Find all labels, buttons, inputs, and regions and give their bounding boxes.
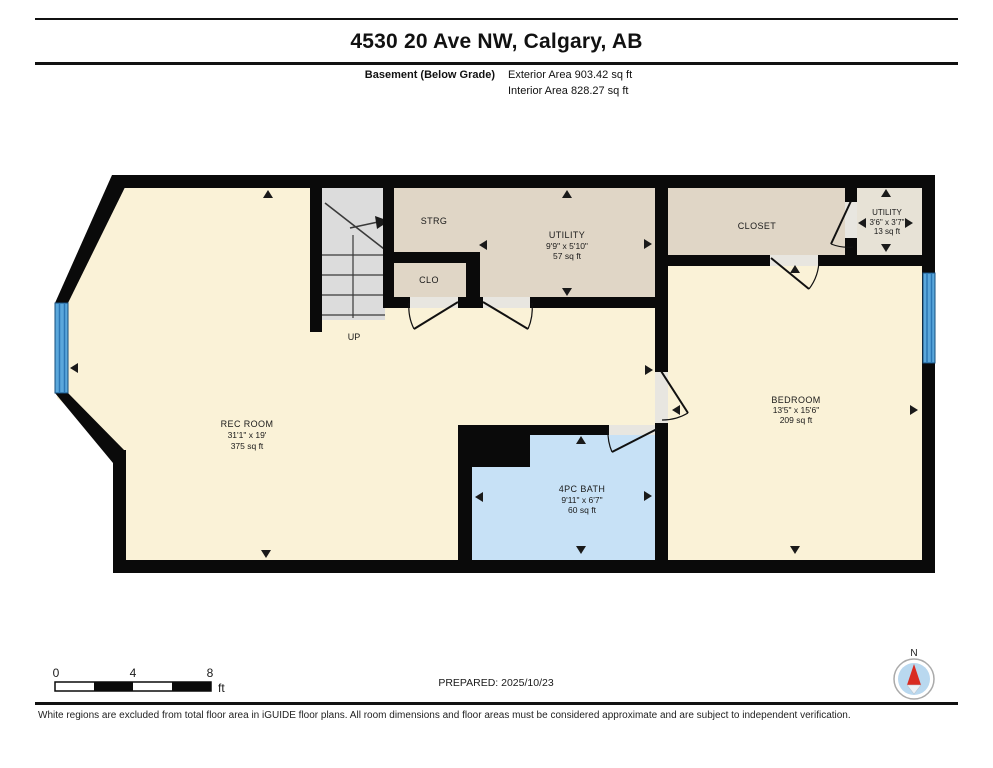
scale-unit: ft [218, 681, 225, 695]
right-window [923, 273, 935, 363]
stairs-up-label: UP [348, 332, 361, 342]
bedroom-area: 209 sq ft [780, 415, 813, 425]
clo-label: CLO [419, 275, 439, 285]
utility-area: 57 sq ft [553, 251, 582, 261]
compass: N [894, 648, 934, 699]
prepared-date: PREPARED: 2025/10/23 [438, 677, 554, 689]
utility-dims: 9'9" x 5'10" [546, 241, 588, 251]
footer-rule [35, 702, 958, 705]
rec-room-dims: 31'1" x 19' [228, 430, 267, 440]
rec-room-label: REC ROOM [221, 419, 274, 429]
bath-label: 4PC BATH [559, 484, 606, 494]
utility-label: UTILITY [549, 230, 585, 240]
scale-4: 4 [130, 666, 137, 680]
compass-n-label: N [910, 648, 917, 659]
floorplan-page: 4530 20 Ave NW, Calgary, AB Basement (Be… [0, 0, 993, 768]
bath-dims: 9'11" x 6'7" [561, 495, 602, 505]
utility-small-label: UTILITY [872, 208, 902, 217]
strg-label: STRG [421, 216, 448, 226]
floorplan-svg: STRG CLO UTILITY 9'9" x 5'10" 57 sq ft C… [0, 0, 993, 768]
floors [57, 188, 922, 560]
scale-0: 0 [53, 666, 60, 680]
utility-small-area: 13 sq ft [874, 227, 901, 236]
bath-area: 60 sq ft [568, 505, 597, 515]
footer-disclaimer: White regions are excluded from total fl… [38, 710, 963, 721]
scale-bar: 0 4 8 ft [53, 666, 226, 695]
rec-room-area: 375 sq ft [231, 441, 264, 451]
closet-label: CLOSET [738, 221, 777, 231]
bedroom-label: BEDROOM [771, 395, 820, 405]
left-window [55, 303, 68, 393]
utility-small-dims: 3'6" x 3'7" [870, 218, 905, 227]
scale-8: 8 [207, 666, 214, 680]
bedroom-dims: 13'5" x 15'6" [773, 405, 820, 415]
